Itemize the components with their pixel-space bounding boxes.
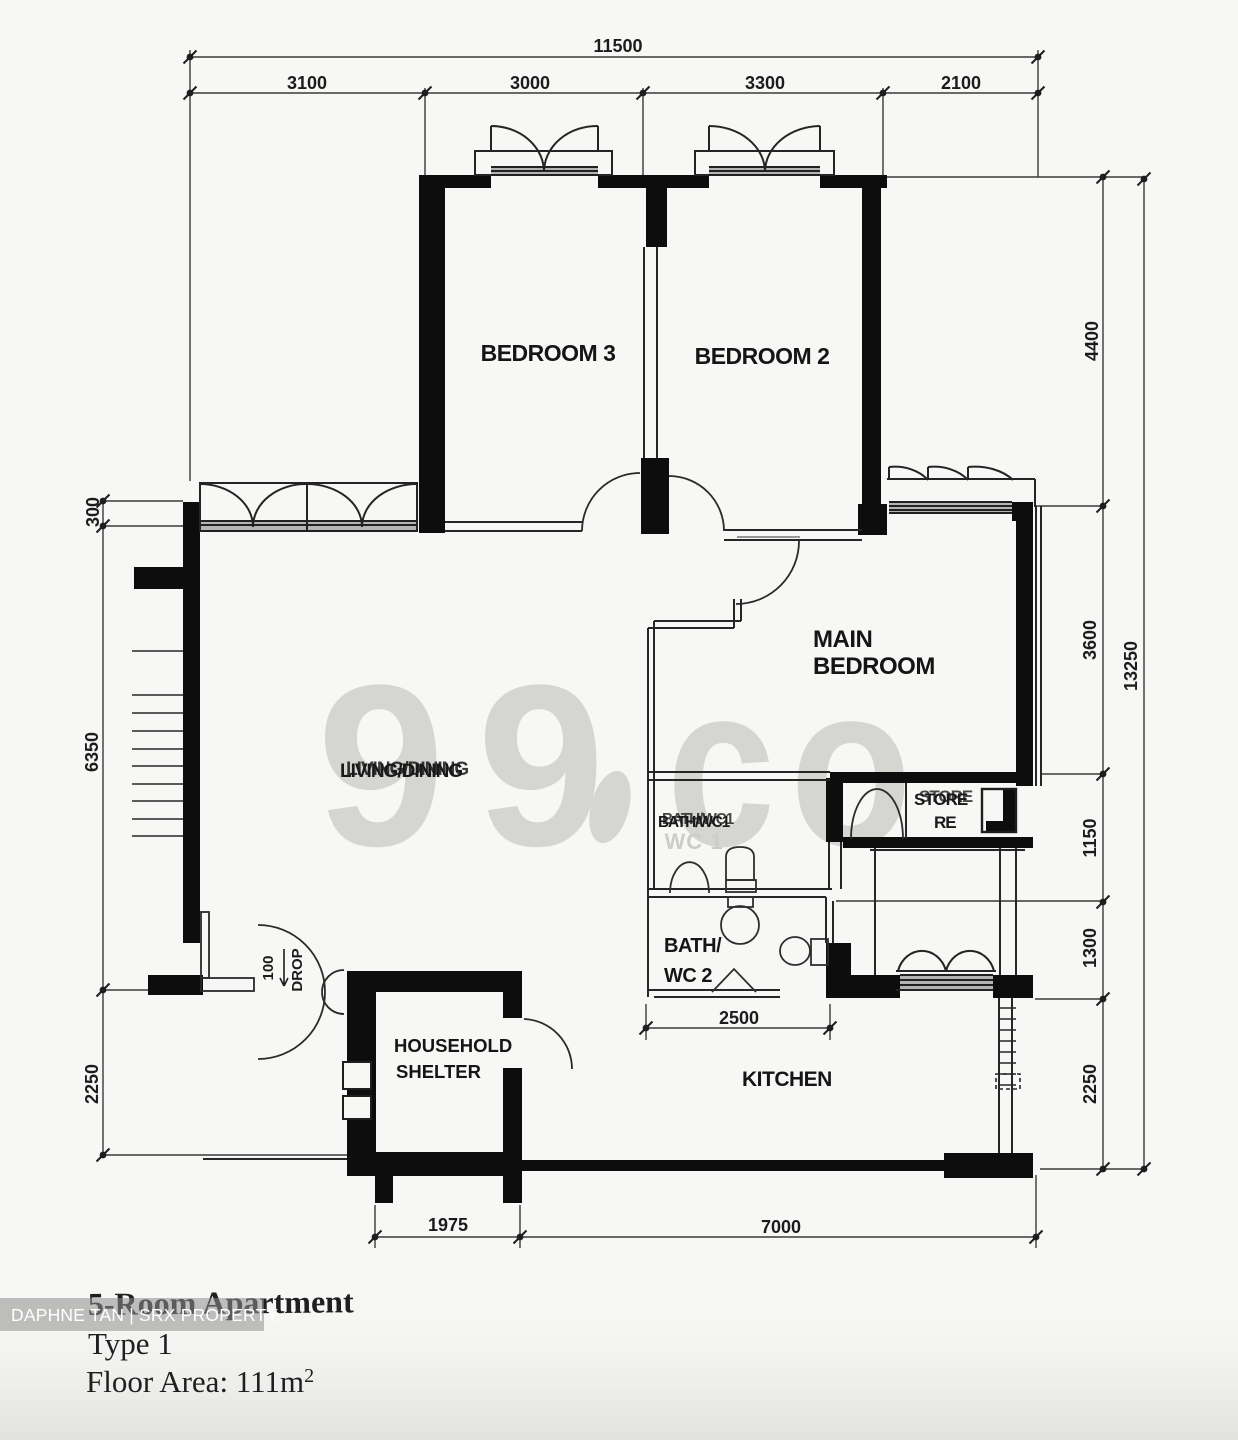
svg-text:WC 2: WC 2: [664, 965, 712, 987]
svg-text:c: c: [667, 638, 776, 894]
svg-text:BEDROOM: BEDROOM: [813, 653, 935, 680]
svg-text:2250: 2250: [1080, 1064, 1100, 1104]
svg-text:100: 100: [260, 955, 277, 980]
svg-text:WC 1: WC 1: [665, 829, 724, 854]
svg-text:BATH/: BATH/: [664, 935, 722, 957]
svg-text:1975: 1975: [428, 1215, 468, 1235]
svg-text:DROP: DROP: [289, 948, 306, 991]
svg-text:3300: 3300: [745, 73, 785, 93]
svg-text:1150: 1150: [1080, 818, 1100, 857]
svg-text:STORE: STORE: [919, 787, 973, 806]
svg-text:BEDROOM 2: BEDROOM 2: [695, 343, 830, 369]
svg-text:3000: 3000: [510, 73, 550, 93]
svg-text:BEDROOM 3: BEDROOM 3: [481, 340, 616, 366]
svg-text:13250: 13250: [1121, 641, 1141, 691]
svg-text:3100: 3100: [287, 73, 327, 93]
svg-text:11500: 11500: [593, 36, 642, 56]
svg-text:2250: 2250: [82, 1064, 102, 1104]
svg-text:DAPHNE TAN | SRX PROPERTY: DAPHNE TAN | SRX PROPERTY: [11, 1305, 278, 1325]
svg-text:BATH/WC1: BATH/WC1: [662, 811, 735, 828]
svg-text:Floor Area: 111m2: Floor Area: 111m2: [86, 1364, 314, 1399]
svg-text:RE: RE: [934, 813, 956, 832]
svg-text:3600: 3600: [1080, 620, 1100, 660]
svg-text:SHELTER: SHELTER: [396, 1061, 481, 1082]
svg-text:LIVING/DINING: LIVING/DINING: [346, 759, 468, 780]
svg-text:6350: 6350: [82, 732, 102, 772]
svg-text:4400: 4400: [1082, 321, 1102, 361]
svg-text:9: 9: [477, 637, 605, 894]
svg-text:2100: 2100: [941, 73, 981, 93]
svg-text:300: 300: [83, 497, 103, 527]
svg-text:MAIN: MAIN: [813, 626, 872, 653]
svg-text:KITCHEN: KITCHEN: [742, 1068, 832, 1091]
svg-text:1300: 1300: [1080, 928, 1100, 968]
svg-text:2500: 2500: [719, 1008, 759, 1028]
svg-text:Type 1: Type 1: [88, 1326, 173, 1361]
svg-text:HOUSEHOLD: HOUSEHOLD: [394, 1035, 512, 1056]
svg-text:7000: 7000: [761, 1217, 801, 1237]
